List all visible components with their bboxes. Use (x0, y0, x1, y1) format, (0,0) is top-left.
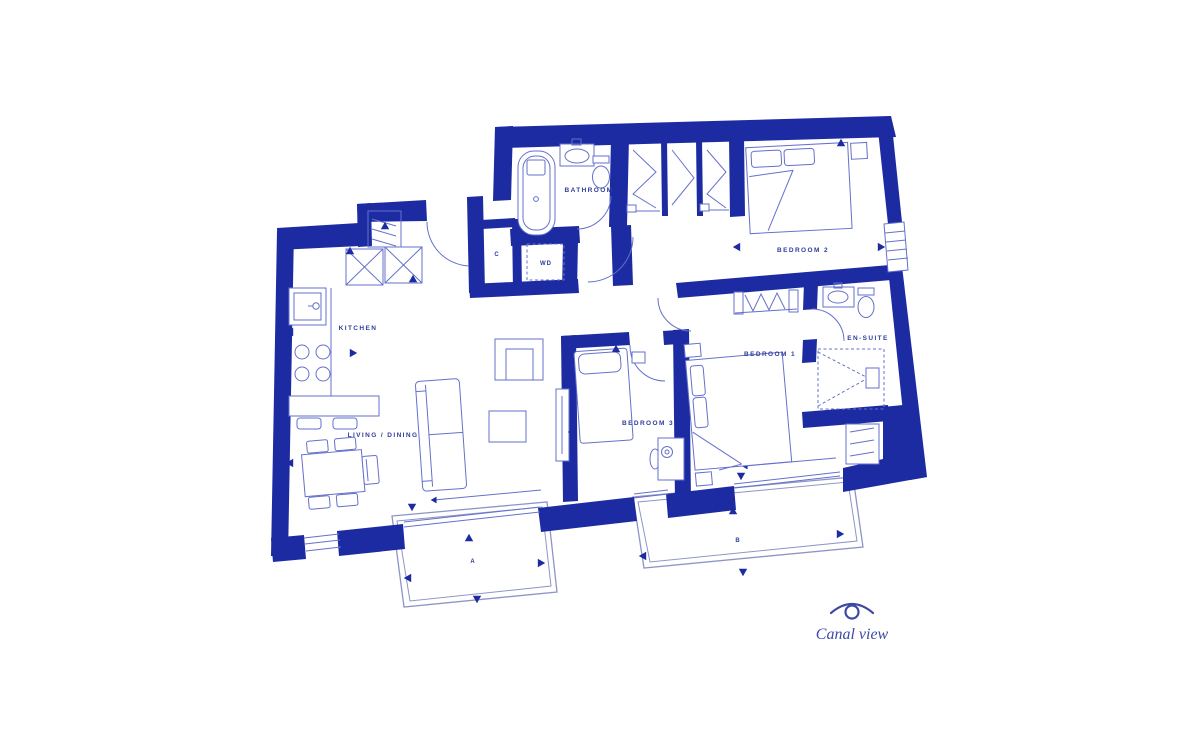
label-kitchen: KITCHEN (339, 325, 378, 332)
label-bedroom3: BEDROOM 3 (622, 420, 674, 427)
armchair (495, 339, 543, 380)
label-ensuite: EN-SUITE (847, 335, 889, 342)
label-bedroom1: BEDROOM 1 (744, 351, 796, 358)
window-living (304, 534, 341, 551)
kitchen-units (289, 247, 422, 429)
wardrobe-bedroom1-right (846, 424, 879, 464)
wardrobe-bedroom1-top (734, 290, 798, 314)
media-console (556, 389, 569, 461)
wardrobe-top-left (627, 150, 660, 212)
wardrobe-top-right (700, 150, 729, 211)
floor-plan-image: KITCHEN LIVING / DINING BATHROOM BEDROOM… (0, 0, 1200, 742)
balcony-b (633, 477, 863, 568)
label-balcony-a: A (470, 559, 475, 565)
canal-view-label: Canal view (816, 626, 889, 643)
ensuite-sink (823, 283, 854, 307)
bathroom-toilet (593, 156, 610, 188)
label-washer-dryer: WD (540, 261, 552, 267)
desk-bedroom3 (650, 438, 684, 480)
label-bathroom: BATHROOM (565, 187, 614, 194)
bedside-table-bedroom3 (632, 352, 645, 363)
bed-bedroom2 (746, 141, 871, 233)
bed-bedroom3 (574, 348, 633, 443)
label-bedroom2: BEDROOM 2 (777, 247, 829, 254)
balcony-a (392, 502, 557, 607)
dining-set (300, 435, 381, 509)
canal-view: Canal view (816, 604, 889, 643)
label-closet: C (494, 252, 499, 258)
label-living-dining: LIVING / DINING (348, 432, 419, 439)
coffee-table (489, 411, 526, 442)
bathtub (518, 151, 555, 235)
floor-plan-page: KITCHEN LIVING / DINING BATHROOM BEDROOM… (0, 0, 1200, 742)
ensuite-shower (818, 349, 884, 409)
label-balcony-b: B (735, 538, 740, 544)
eye-icon (831, 604, 873, 619)
wardrobe-top-middle (672, 150, 694, 205)
ensuite-toilet (858, 288, 874, 318)
sofa (415, 379, 467, 492)
window-bedroom2 (884, 222, 908, 272)
